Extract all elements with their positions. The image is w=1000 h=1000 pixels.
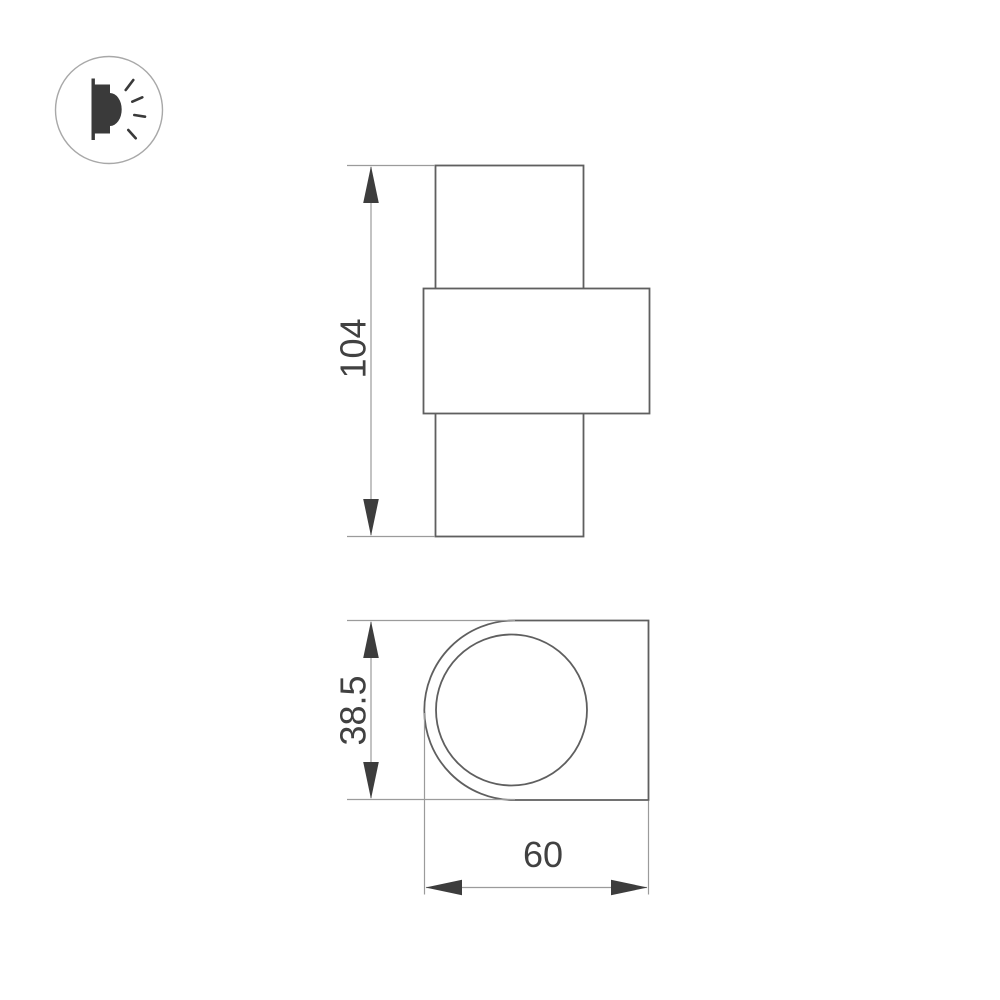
dimension-drawing: 104 38.5 60 bbox=[0, 0, 1000, 1000]
front-height-dimension-label: 104 bbox=[333, 318, 374, 378]
top-view: 38.5 60 bbox=[333, 621, 649, 896]
top-depth-dimension-label: 38.5 bbox=[333, 675, 374, 745]
depth-arrow-down-icon bbox=[363, 762, 379, 799]
top-view-housing-outline bbox=[424, 621, 648, 801]
front-view: 104 bbox=[333, 166, 650, 537]
top-width-dimension-label: 60 bbox=[523, 834, 563, 875]
front-view-mount-bracket bbox=[424, 289, 650, 414]
height-dimension: 104 bbox=[333, 166, 436, 537]
brand-logo bbox=[56, 57, 163, 164]
depth-arrow-up-icon bbox=[363, 621, 379, 658]
height-arrow-up-icon bbox=[363, 166, 379, 203]
width-arrow-left-icon bbox=[426, 880, 463, 896]
lamp-body bbox=[95, 85, 111, 134]
technical-drawing-canvas: 104 38.5 60 bbox=[0, 0, 1000, 1000]
lamp-backplate bbox=[92, 79, 95, 141]
width-arrow-right-icon bbox=[611, 880, 648, 896]
height-arrow-down-icon bbox=[363, 499, 379, 536]
